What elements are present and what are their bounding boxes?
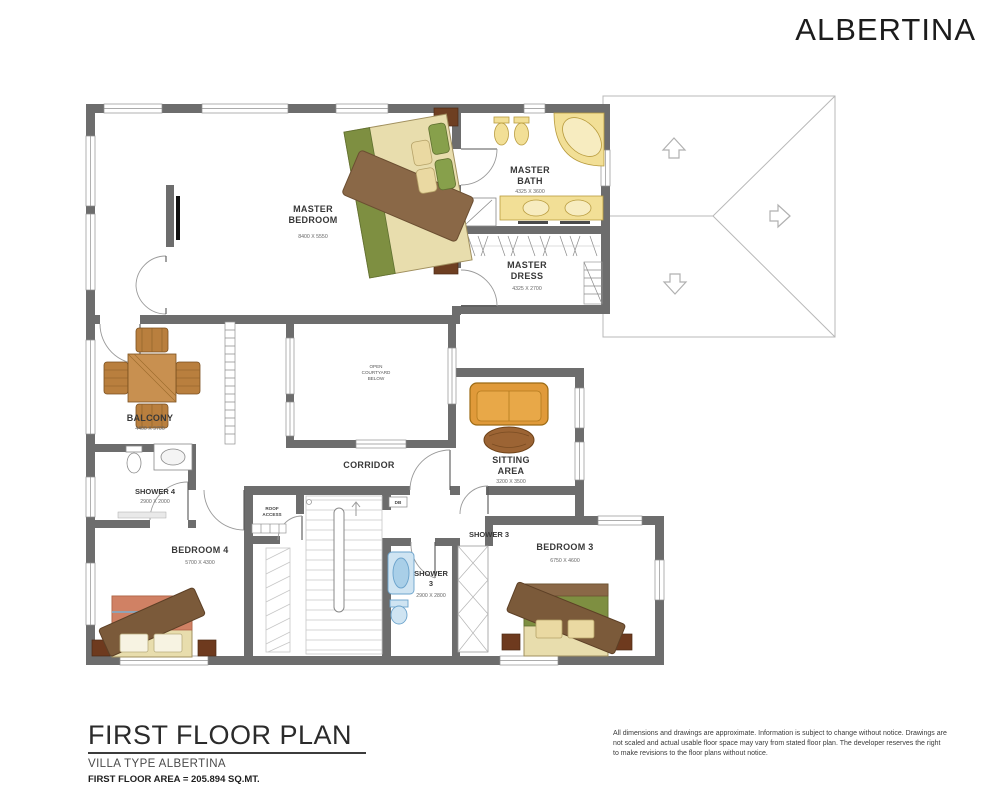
room-label-master-dress: MASTER DRESS 4325 X 2700 [507,260,547,292]
tv-icon [176,196,180,240]
bathtub-icon [388,552,414,594]
roof-arrow-right-icon [770,205,790,227]
svg-text:MASTER: MASTER [510,165,550,175]
stair-void-hatch [266,548,290,652]
room-label-master-bedroom: MASTER BEDROOM 8400 X 5550 [288,204,337,240]
svg-text:BATH: BATH [517,176,543,186]
floor-plan-sheet: ALBERTINA [0,0,1000,800]
svg-text:OPEN: OPEN [369,364,382,369]
room-label-roof-access: ROOF ACCESS [262,506,281,517]
sink-icon [154,444,192,470]
coffee-table-icon [484,427,534,453]
shower4-fixtures [118,444,192,518]
svg-text:5700 X 4300: 5700 X 4300 [185,560,215,566]
floor-plan-drawing: MASTER BEDROOM 8400 X 5550 MASTER BATH 4… [0,0,1000,800]
svg-text:AREA: AREA [498,466,525,476]
bedroom3-door [460,486,488,514]
bedroom3-bed-icon [502,581,632,656]
master-bed-icon [331,112,485,280]
svg-text:3: 3 [429,579,433,588]
dress-shelves [584,262,602,304]
svg-text:MASTER: MASTER [293,204,333,214]
room-label-courtyard: OPEN COURTYARD BELOW [362,364,391,381]
svg-text:SHOWER 3: SHOWER 3 [469,530,509,539]
svg-text:DB: DB [395,500,402,505]
toilet-icon [390,600,408,624]
room-label-corridor: CORRIDOR [343,460,395,470]
roof-arrow-down-icon [664,274,686,294]
bedroom4-door [204,490,244,530]
svg-text:3200 X 3500: 3200 X 3500 [496,479,526,485]
roof-access-bench [252,524,286,533]
svg-text:CORRIDOR: CORRIDOR [343,460,395,470]
svg-text:6750 X 4600: 6750 X 4600 [550,558,580,564]
bidet-icon [514,117,529,145]
toilet-icon [126,446,142,473]
room-label-bedroom3: BEDROOM 3 6750 X 4600 [536,542,593,564]
svg-text:ROOF: ROOF [265,506,278,511]
master-bath-door [461,149,497,185]
room-label-shower4: SHOWER 4 2900 X 2000 [135,487,176,505]
svg-text:ACCESS: ACCESS [262,512,281,517]
room-label-shower3: SHOWER 3 2900 X 2800 [414,569,448,599]
corner-bathtub-icon [554,110,609,166]
room-label-sitting-area: SITTING AREA 3200 X 3500 [492,455,530,485]
svg-text:8400 X 5550: 8400 X 5550 [298,234,328,240]
floor-area-note: FIRST FLOOR AREA = 205.894 SQ.MT. [88,774,260,785]
master-dress-door [461,270,497,306]
disclaimer-text: All dimensions and drawings are approxim… [613,729,947,759]
svg-text:4325 X 3600: 4325 X 3600 [515,189,545,195]
svg-text:BEDROOM 4: BEDROOM 4 [171,545,228,555]
room-label-bedroom4: BEDROOM 4 5700 X 4300 [171,545,228,566]
villa-type-subtitle: VILLA TYPE ALBERTINA [88,758,226,770]
svg-text:BALCONY: BALCONY [127,413,174,423]
double-vanity-icon [500,196,603,224]
svg-text:4400 X 9700: 4400 X 9700 [135,426,165,432]
svg-text:BELOW: BELOW [368,376,385,381]
title-underline [88,752,366,754]
sofa-icon [470,383,548,425]
svg-text:DRESS: DRESS [511,271,544,281]
master-bedroom-furniture [176,108,485,280]
svg-text:2900 X 2000: 2900 X 2000 [140,499,170,505]
bedroom3-wardrobe [458,546,488,652]
bedroom4-bed-icon [92,587,216,657]
svg-text:SHOWER 4: SHOWER 4 [135,487,176,496]
balcony-rail [225,322,235,444]
room-label-db: DB [395,500,402,505]
stair-direction-arrow-icon [352,502,360,516]
room-label-balcony: BALCONY 4400 X 9700 [127,413,174,432]
corridor-door [410,450,450,490]
svg-text:SITTING: SITTING [492,455,530,465]
svg-text:BEDROOM: BEDROOM [288,215,337,225]
shower3-fixtures [388,552,414,624]
toilet-icon [494,117,509,145]
svg-text:BEDROOM 3: BEDROOM 3 [536,542,593,552]
svg-text:MASTER: MASTER [507,260,547,270]
staircase [252,496,382,654]
roof-arrow-up-icon [663,138,685,158]
svg-text:COURTYARD: COURTYARD [362,370,391,375]
sitting-area-furniture [470,383,548,453]
wardrobe-hanging-rail [466,236,602,304]
svg-text:2900 X 2800: 2900 X 2800 [416,593,446,599]
room-label-shower3-tag: SHOWER 3 [469,530,509,539]
svg-text:4325 X 2700: 4325 X 2700 [512,286,542,292]
svg-text:SHOWER: SHOWER [414,569,448,578]
roof-plan [603,96,835,337]
sheet-title: FIRST FLOOR PLAN [88,720,352,751]
bedroom-double-doors [136,256,166,314]
room-label-master-bath: MASTER BATH 4325 X 3600 [510,165,550,195]
